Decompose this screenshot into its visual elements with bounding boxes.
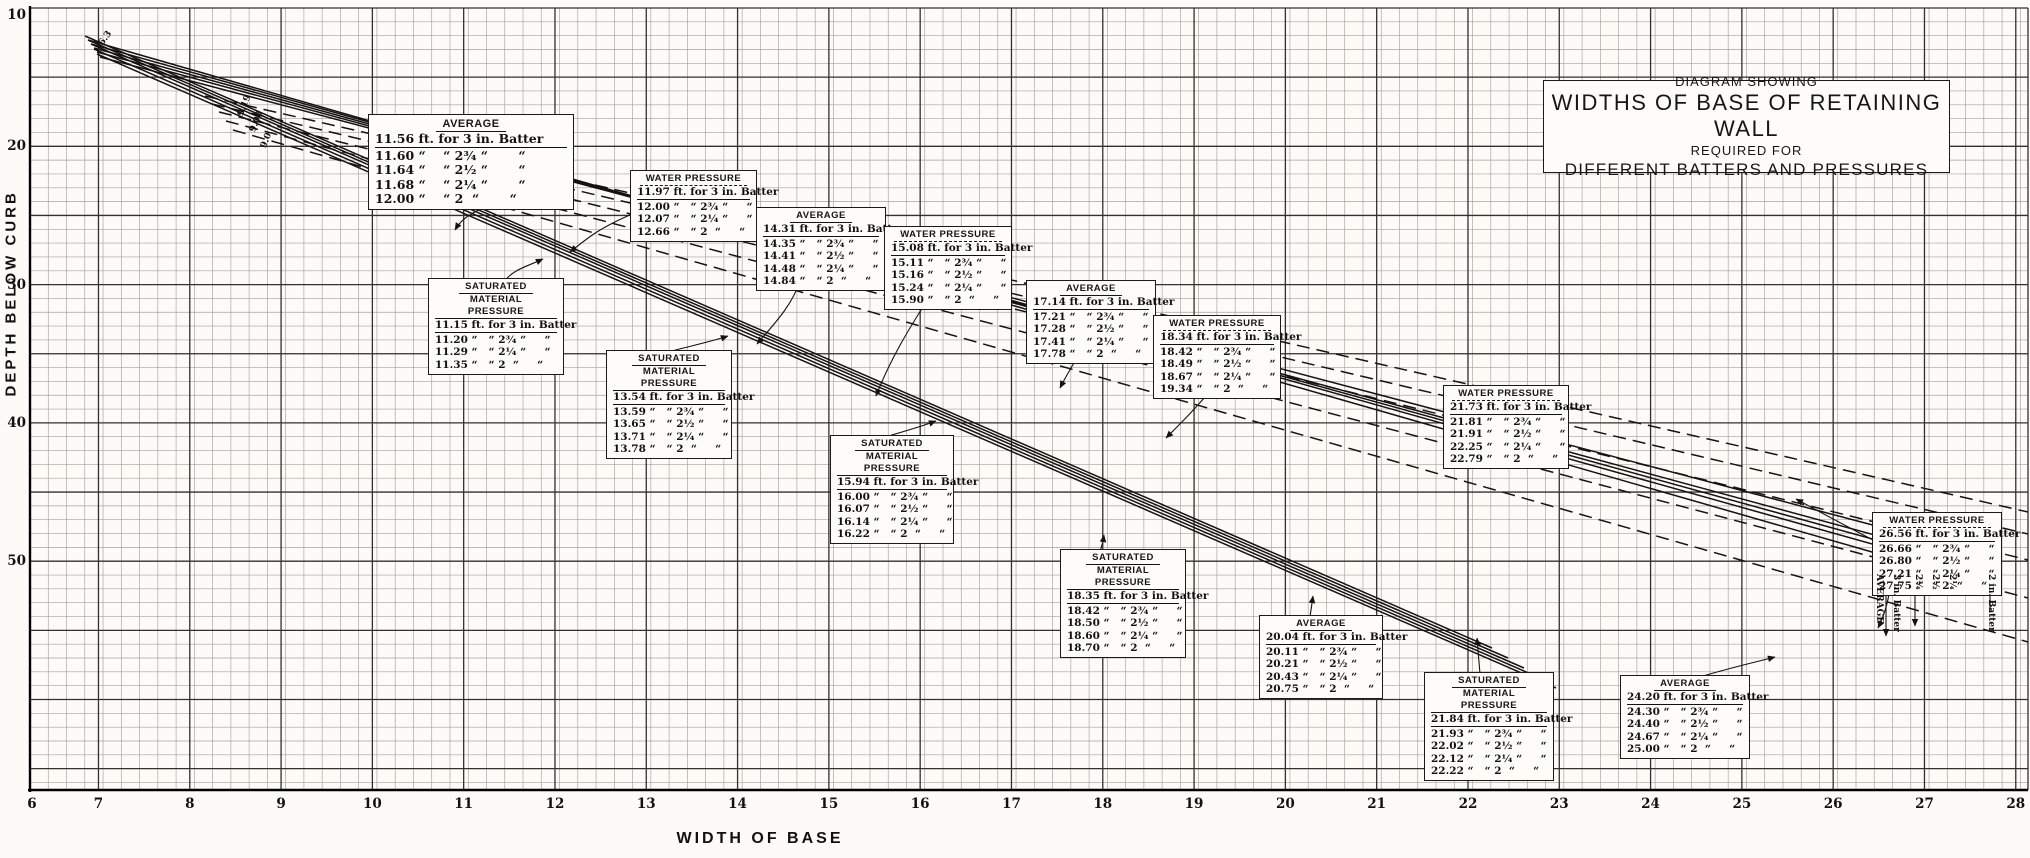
annotation-box-sat-1594: SATURATEDMATERIAL PRESSURE15.94 ft. for … [830,435,954,544]
annotation-box-title: SATURATED [613,353,725,366]
annotation-box-title: WATER PRESSURE [1450,388,1562,401]
y-tick-label: 50 [2,553,26,569]
line-end-batter-label: 2¾ [1913,574,1923,590]
annotation-box-sat-1354: SATURATEDMATERIAL PRESSURE13.54 ft. for … [606,350,732,459]
retaining-wall-diagram: DIAGRAM SHOWING WIDTHS OF BASE OF RETAIN… [0,0,2030,858]
annotation-row: 11.64 “ “ 2½ “ “ [375,163,567,177]
annotation-row: 26.80 “ “ 2½ “ “ [1879,555,1995,567]
annotation-row: 24.20 ft. for 3 in. Batter [1627,691,1743,705]
annotation-row: 15.24 “ “ 2¼ “ “ [891,282,1005,294]
x-tick-label: 9 [276,796,285,812]
annotation-box-title: SATURATED [1431,675,1547,688]
line-end-batter-label: 3 in. Batter [1891,574,1901,632]
title-line-1: DIAGRAM SHOWING [1544,73,1949,90]
annotation-row: 15.11 “ “ 2¾ “ “ [891,257,1005,269]
annotation-row: 22.02 “ “ 2½ “ “ [1431,740,1547,752]
y-tick-label: 20 [2,138,26,154]
annotation-row: 17.78 “ “ 2 “ “ [1033,348,1149,360]
annotation-row: 22.25 “ “ 2¼ “ “ [1450,441,1562,453]
annotation-row: 18.34 ft. for 3 in. Batter [1160,331,1274,345]
annotation-row: 18.67 “ “ 2¼ “ “ [1160,371,1274,383]
annotation-row: 11.68 “ “ 2¼ “ “ [375,178,567,192]
annotation-row: 16.14 “ “ 2¼ “ “ [837,516,947,528]
line-end-batter-label: 2½ [1930,574,1940,590]
annotation-row: 16.00 “ “ 2¾ “ “ [837,491,947,503]
annotation-row: 18.60 “ “ 2¼ “ “ [1067,630,1179,642]
x-tick-label: 12 [546,796,565,812]
annotation-box-title: WATER PRESSURE [1160,318,1274,331]
x-tick-label: 20 [1276,796,1295,812]
annotation-row: 22.12 “ “ 2¼ “ “ [1431,753,1547,765]
annotation-box-title: AVERAGE [1033,283,1149,296]
annotation-row: 21.73 ft. for 3 in. Batter [1450,401,1562,415]
annotation-box-avg-1431: AVERAGE14.31 ft. for 3 in. Batter14.35 “… [756,207,886,291]
annotation-row: 13.54 ft. for 3 in. Batter [613,391,725,405]
annotation-box-title: WATER PRESSURE [637,173,750,186]
x-tick-label: 7 [94,796,103,812]
annotation-row: 18.49 “ “ 2½ “ “ [1160,358,1274,370]
annotation-row: 14.84 “ “ 2 “ “ [763,275,879,287]
annotation-row: 18.42 “ “ 2¾ “ “ [1160,346,1274,358]
annotation-box-title: MATERIAL PRESSURE [435,294,557,319]
annotation-box-title: SATURATED [837,438,947,451]
x-tick-label: 24 [1641,796,1660,812]
annotation-box-title: WATER PRESSURE [1879,515,1995,528]
annotation-box-sat-1115: SATURATEDMATERIAL PRESSURE11.15 ft. for … [428,278,564,375]
x-tick-label: 16 [911,796,930,812]
annotation-box-title: AVERAGE [1627,678,1743,691]
annotation-box-wat-1508: WATER PRESSURE15.08 ft. for 3 in. Batter… [884,226,1012,310]
annotation-row: 22.22 “ “ 2 “ “ [1431,765,1547,777]
x-tick-label: 25 [1732,796,1751,812]
annotation-row: 15.90 “ “ 2 “ “ [891,294,1005,306]
annotation-row: 17.28 “ “ 2½ “ “ [1033,323,1149,335]
x-tick-label: 18 [1093,796,1112,812]
annotation-row: 20.21 “ “ 2½ “ “ [1266,658,1376,670]
annotation-row: 15.08 ft. for 3 in. Batter [891,242,1005,256]
annotation-row: 17.41 “ “ 2¼ “ “ [1033,336,1149,348]
annotation-box-title: MATERIAL PRESSURE [837,451,947,476]
annotation-row: 13.59 “ “ 2¾ “ “ [613,406,725,418]
annotation-box-title: SATURATED [435,281,557,294]
annotation-row: 24.40 “ “ 2½ “ “ [1627,718,1743,730]
annotation-box-wat-1834: WATER PRESSURE18.34 ft. for 3 in. Batter… [1153,315,1281,399]
x-tick-label: 26 [1824,796,1843,812]
x-tick-label: 19 [1185,796,1204,812]
title-line-4: DIFFERENT BATTERS AND PRESSURES [1544,159,1949,180]
annotation-row: 11.20 “ “ 2¾ “ “ [435,334,557,346]
annotation-row: 13.71 “ “ 2¼ “ “ [613,431,725,443]
x-tick-label: 6 [27,796,36,812]
annotation-box-avg-1156: AVERAGE11.56 ft. for 3 in. Batter11.60 “… [368,114,574,210]
annotation-box-wat-2173: WATER PRESSURE21.73 ft. for 3 in. Batter… [1443,385,1569,469]
annotation-row: 11.56 ft. for 3 in. Batter [375,132,567,148]
annotation-row: 17.14 ft. for 3 in. Batter [1033,296,1149,310]
annotation-row: 26.66 “ “ 2¾ “ “ [1879,543,1995,555]
y-tick-label: 40 [2,415,26,431]
annotation-row: 18.70 “ “ 2 “ “ [1067,642,1179,654]
annotation-box-sat-1835: SATURATEDMATERIAL PRESSURE18.35 ft. for … [1060,549,1186,658]
annotation-box-avg-2004: AVERAGE20.04 ft. for 3 in. Batter20.11 “… [1259,615,1383,699]
x-tick-label: 22 [1459,796,1478,812]
annotation-row: 11.97 ft. for 3 in. Batter [637,186,750,200]
annotation-row: 19.34 “ “ 2 “ “ [1160,383,1274,395]
annotation-box-avg-2420: AVERAGE24.20 ft. for 3 in. Batter24.30 “… [1620,675,1750,759]
x-tick-label: 10 [363,796,382,812]
annotation-row: 21.81 “ “ 2¾ “ “ [1450,416,1562,428]
annotation-row: 11.60 “ “ 2¾ “ “ [375,149,567,163]
annotation-row: 16.22 “ “ 2 “ “ [837,528,947,540]
annotation-row: 12.00 “ “ 2 “ “ [375,192,567,206]
x-tick-label: 13 [637,796,656,812]
y-tick-label: 10 [2,7,26,23]
title-line-2: WIDTHS OF BASE OF RETAINING WALL [1544,90,1949,142]
annotation-row: 13.65 “ “ 2½ “ “ [613,418,725,430]
annotation-row: 20.11 “ “ 2¾ “ “ [1266,646,1376,658]
annotation-box-title: MATERIAL PRESSURE [1431,688,1547,713]
annotation-row: 20.04 ft. for 3 in. Batter [1266,631,1376,645]
x-tick-label: 15 [819,796,838,812]
line-end-batter-label: AVERAGE [1874,574,1884,623]
annotation-box-title: AVERAGE [375,117,567,132]
annotation-row: 21.93 “ “ 2¾ “ “ [1431,728,1547,740]
annotation-row: 22.79 “ “ 2 “ “ [1450,453,1562,465]
x-tick-label: 14 [728,796,747,812]
annotation-row: 20.75 “ “ 2 “ “ [1266,683,1376,695]
title-line-3: REQUIRED FOR [1544,142,1949,159]
annotation-box-title: MATERIAL PRESSURE [613,366,725,391]
y-tick-label: 30 [2,277,26,293]
annotation-row: 14.35 “ “ 2¾ “ “ [763,238,879,250]
annotation-box-title: AVERAGE [763,210,879,223]
annotation-row: 11.15 ft. for 3 in. Batter [435,319,557,333]
annotation-box-avg-1714: AVERAGE17.14 ft. for 3 in. Batter17.21 “… [1026,280,1156,364]
x-tick-label: 17 [1002,796,1021,812]
annotation-box-title: SATURATED [1067,552,1179,565]
annotation-box-wat-1197: WATER PRESSURE11.97 ft. for 3 in. Batter… [630,170,757,242]
annotation-row: 11.35 “ “ 2 “ “ [435,359,557,371]
annotation-box-title: WATER PRESSURE [891,229,1005,242]
annotation-row: 14.48 “ “ 2¼ “ “ [763,263,879,275]
annotation-row: 14.31 ft. for 3 in. Batter [763,223,879,237]
x-tick-label: 28 [2006,796,2025,812]
annotation-row: 26.56 ft. for 3 in. Batter [1879,528,1995,542]
annotation-row: 18.35 ft. for 3 in. Batter [1067,590,1179,604]
annotation-row: 24.67 “ “ 2¼ “ “ [1627,731,1743,743]
annotation-row: 24.30 “ “ 2¾ “ “ [1627,706,1743,718]
annotation-row: 21.91 “ “ 2½ “ “ [1450,428,1562,440]
annotation-box-sat-2184: SATURATEDMATERIAL PRESSURE21.84 ft. for … [1424,672,1554,781]
annotation-row: 11.29 “ “ 2¼ “ “ [435,346,557,358]
annotation-row: 16.07 “ “ 2½ “ “ [837,503,947,515]
annotation-row: 13.78 “ “ 2 “ “ [613,443,725,455]
title-block: DIAGRAM SHOWING WIDTHS OF BASE OF RETAIN… [1543,80,1950,173]
line-end-batter-label: 2¼ [1947,574,1957,590]
y-axis-title: DEPTH BELOW CURB [3,197,20,397]
x-tick-label: 21 [1367,796,1386,812]
x-tick-label: 27 [1915,796,1934,812]
x-tick-label: 11 [454,796,473,812]
x-axis-title: WIDTH OF BASE [630,830,890,848]
annotation-row: 20.43 “ “ 2¼ “ “ [1266,671,1376,683]
annotation-box-title: MATERIAL PRESSURE [1067,565,1179,590]
x-tick-label: 23 [1550,796,1569,812]
annotation-row: 12.66 “ “ 2 “ “ [637,226,750,238]
annotation-row: 15.16 “ “ 2½ “ “ [891,269,1005,281]
annotation-row: 14.41 “ “ 2½ “ “ [763,250,879,262]
annotation-row: 18.50 “ “ 2½ “ “ [1067,617,1179,629]
annotation-box-title: AVERAGE [1266,618,1376,631]
line-end-batter-label: 2 in. Batter [1986,574,1996,632]
annotation-row: 12.00 “ “ 2¾ “ “ [637,201,750,213]
annotation-row: 12.07 “ “ 2¼ “ “ [637,213,750,225]
x-tick-label: 8 [185,796,194,812]
annotation-row: 18.42 “ “ 2¾ “ “ [1067,605,1179,617]
annotation-row: 21.84 ft. for 3 in. Batter [1431,713,1547,727]
annotation-row: 15.94 ft. for 3 in. Batter [837,476,947,490]
annotation-row: 25.00 “ “ 2 “ “ [1627,743,1743,755]
annotation-row: 17.21 “ “ 2¾ “ “ [1033,311,1149,323]
